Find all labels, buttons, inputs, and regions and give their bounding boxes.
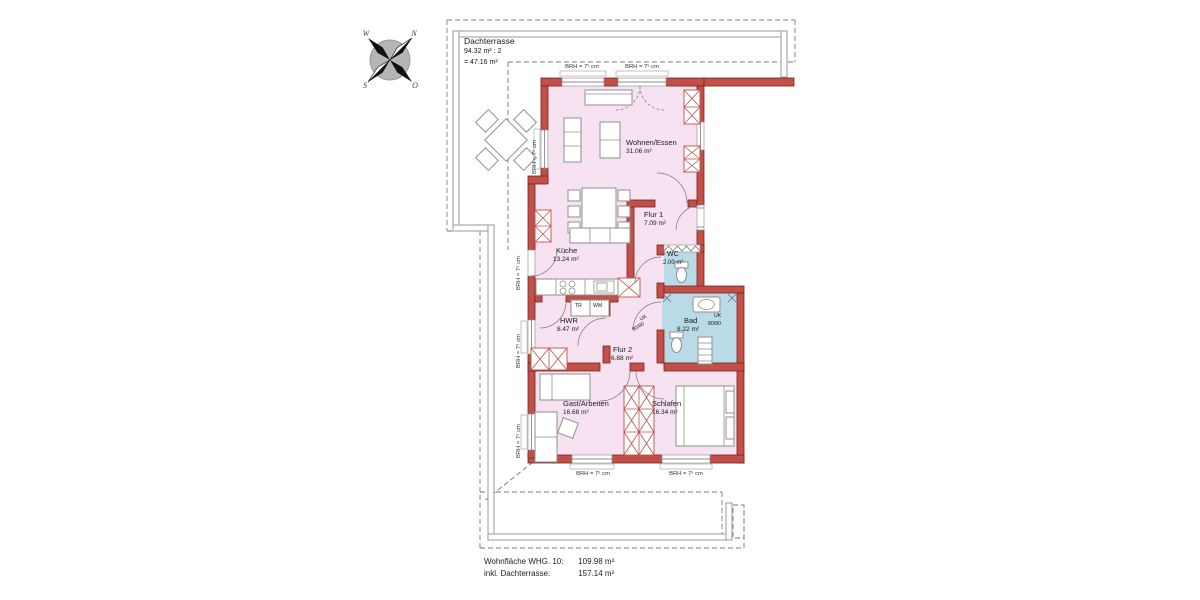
- compass-rose-icon: W N S O: [363, 29, 418, 90]
- footer-living-area-label: Wohnfläche WHG. 10:: [484, 557, 576, 566]
- footer-living-area-value: 109.98 m²: [578, 557, 614, 566]
- dryer-label: TR: [575, 303, 582, 310]
- room-area-gast-arbeiten: 16.68 m²: [563, 409, 589, 417]
- room-area-flur2: 6.88 m²: [611, 355, 633, 363]
- room-label-wc: WC: [667, 251, 679, 260]
- floor-plan-drawing: W N S O: [0, 0, 1200, 600]
- floor-plan-page: W N S O: [0, 0, 1200, 600]
- room-label-flur1: Flur 1: [644, 210, 663, 219]
- room-area-hwr: 8.47 m²: [557, 326, 579, 334]
- brh-label-bottom-2: BRH = 7⁵ cm: [658, 471, 714, 478]
- brh-label-left-3: BRH = 7⁵ cm: [516, 334, 523, 368]
- brh-label-left-2: BRH = 7⁵ cm: [516, 256, 523, 290]
- room-label-bad: Bad: [684, 316, 697, 325]
- room-area-wohnen-essen: 31.06 m²: [626, 148, 652, 156]
- uk-size-bad: 80/80: [708, 321, 721, 328]
- brh-label-top-2: BRH = 7⁵ cm: [614, 64, 670, 71]
- room-area-flur1: 7.09 m²: [644, 220, 666, 228]
- compass-south-label: S: [363, 81, 367, 90]
- brh-label-left-4: BRH = 7⁵ cm: [516, 424, 523, 458]
- brh-label-bottom-1: BRH = 7⁵ cm: [568, 471, 618, 478]
- room-label-gast-arbeiten: Gast/Arbeiten: [563, 399, 609, 408]
- terrace-area-calc: 94.32 m² : 2: [464, 48, 501, 57]
- terrace-name: Dachterrasse: [464, 36, 515, 47]
- room-area-wc: 2.00 m²: [663, 260, 683, 268]
- footer-total-area: inkl. Dachterrasse: 157.14 m²: [484, 569, 614, 578]
- uk-label-bad: UK: [714, 313, 721, 320]
- room-area-schlafen: 16.34 m²: [652, 409, 678, 417]
- bedroom-furniture: [676, 386, 734, 446]
- room-area-kueche: 13.24 m²: [553, 256, 579, 264]
- room-label-schlafen: Schlafen: [652, 399, 681, 408]
- room-label-flur2: Flur 2: [613, 345, 632, 354]
- room-area-bad: 8.22 m²: [677, 326, 699, 334]
- footer-total-area-label: inkl. Dachterrasse:: [484, 569, 576, 578]
- footer-living-area: Wohnfläche WHG. 10: 109.98 m²: [484, 557, 614, 566]
- washer-label: WM: [593, 303, 602, 310]
- brh-label-left-1: BRH = 7⁵ cm: [532, 140, 539, 174]
- room-label-kueche: Küche: [556, 246, 577, 255]
- compass-west-label: W: [363, 29, 371, 38]
- compass-east-label: O: [412, 81, 418, 90]
- room-label-wohnen-essen: Wohnen/Essen: [626, 138, 677, 147]
- room-label-hwr: HWR: [560, 316, 578, 325]
- footer-total-area-value: 157.14 m²: [578, 569, 614, 578]
- terrace-area-result: = 47.16 m²: [464, 59, 498, 68]
- compass-north-label: N: [410, 29, 417, 38]
- brh-label-top-1: BRH = 7⁵ cm: [556, 64, 608, 71]
